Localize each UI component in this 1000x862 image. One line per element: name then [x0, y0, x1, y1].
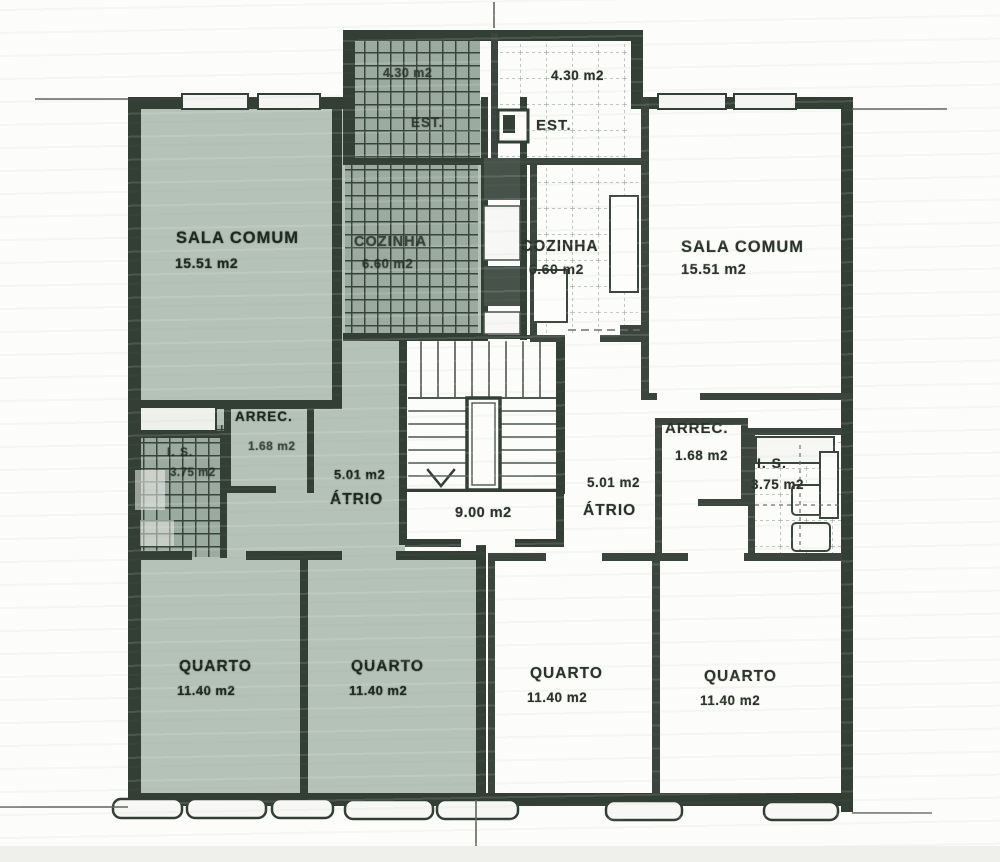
- room-label-is-right: I. S.: [757, 456, 787, 470]
- room-area-quarto-3: 11.40 m2: [527, 691, 587, 705]
- room-label-est-right: EST.: [536, 118, 572, 133]
- room-area-quarto-4: 11.40 m2: [700, 694, 760, 708]
- room-label-cozinha-left: COZINHA: [354, 235, 427, 250]
- closet-left: [140, 407, 216, 431]
- room-label-est-left: EST.: [411, 116, 444, 130]
- room-area-is-left: 3.75 m2: [170, 468, 216, 480]
- room-area-cozinha-right: 6.60 m2: [529, 262, 584, 276]
- room-label-quarto-3: QUARTO: [530, 666, 603, 682]
- room-label-arrec-right: ARREC.: [665, 421, 729, 436]
- room-area-sala-comum-right: 15.51 m2: [681, 263, 746, 278]
- room-label-quarto-2: QUARTO: [351, 659, 424, 675]
- room-area-quarto-1: 11.40 m2: [177, 684, 235, 697]
- room-area-quarto-2: 11.40 m2: [349, 684, 407, 697]
- room-label-quarto-1: QUARTO: [179, 659, 252, 675]
- room-label-is-left: I. S.: [167, 446, 193, 458]
- room-area-is-right: 3.75 m2: [751, 478, 804, 492]
- room-label-sala-comum-right: SALA COMUM: [681, 239, 804, 256]
- room-area-stair-lobby: 9.00 m2: [455, 506, 512, 521]
- room-label-cozinha-right: COZINHA: [521, 239, 599, 255]
- floor-plan-drawing: [0, 0, 1000, 862]
- room-area-arrec-left: 1.68 m2: [248, 440, 296, 452]
- room-label-quarto-4: QUARTO: [704, 669, 777, 685]
- room-area-atrio-right: 5.01 m2: [587, 476, 640, 490]
- hatch-left-est: [348, 35, 480, 160]
- room-area-atrio-left: 5.01 m2: [334, 468, 385, 481]
- room-area-est-right: 4.30 m2: [551, 69, 604, 83]
- room-label-atrio-left: ÁTRIO: [330, 492, 383, 508]
- room-label-sala-comum-left: SALA COMUM: [176, 230, 299, 247]
- room-area-arrec-right: 1.68 m2: [675, 449, 728, 463]
- room-area-cozinha-left: 6.60 m2: [362, 257, 413, 270]
- floor-plan-page: 4.30 m2 EST. 4.30 m2 EST. SALA COMUM 15.…: [0, 0, 1000, 862]
- room-area-sala-comum-left: 15.51 m2: [175, 256, 238, 270]
- room-label-atrio-right: ÁTRIO: [583, 503, 636, 519]
- room-area-est-left: 4.30 m2: [383, 67, 432, 80]
- room-label-arrec-left: ARREC.: [235, 410, 293, 424]
